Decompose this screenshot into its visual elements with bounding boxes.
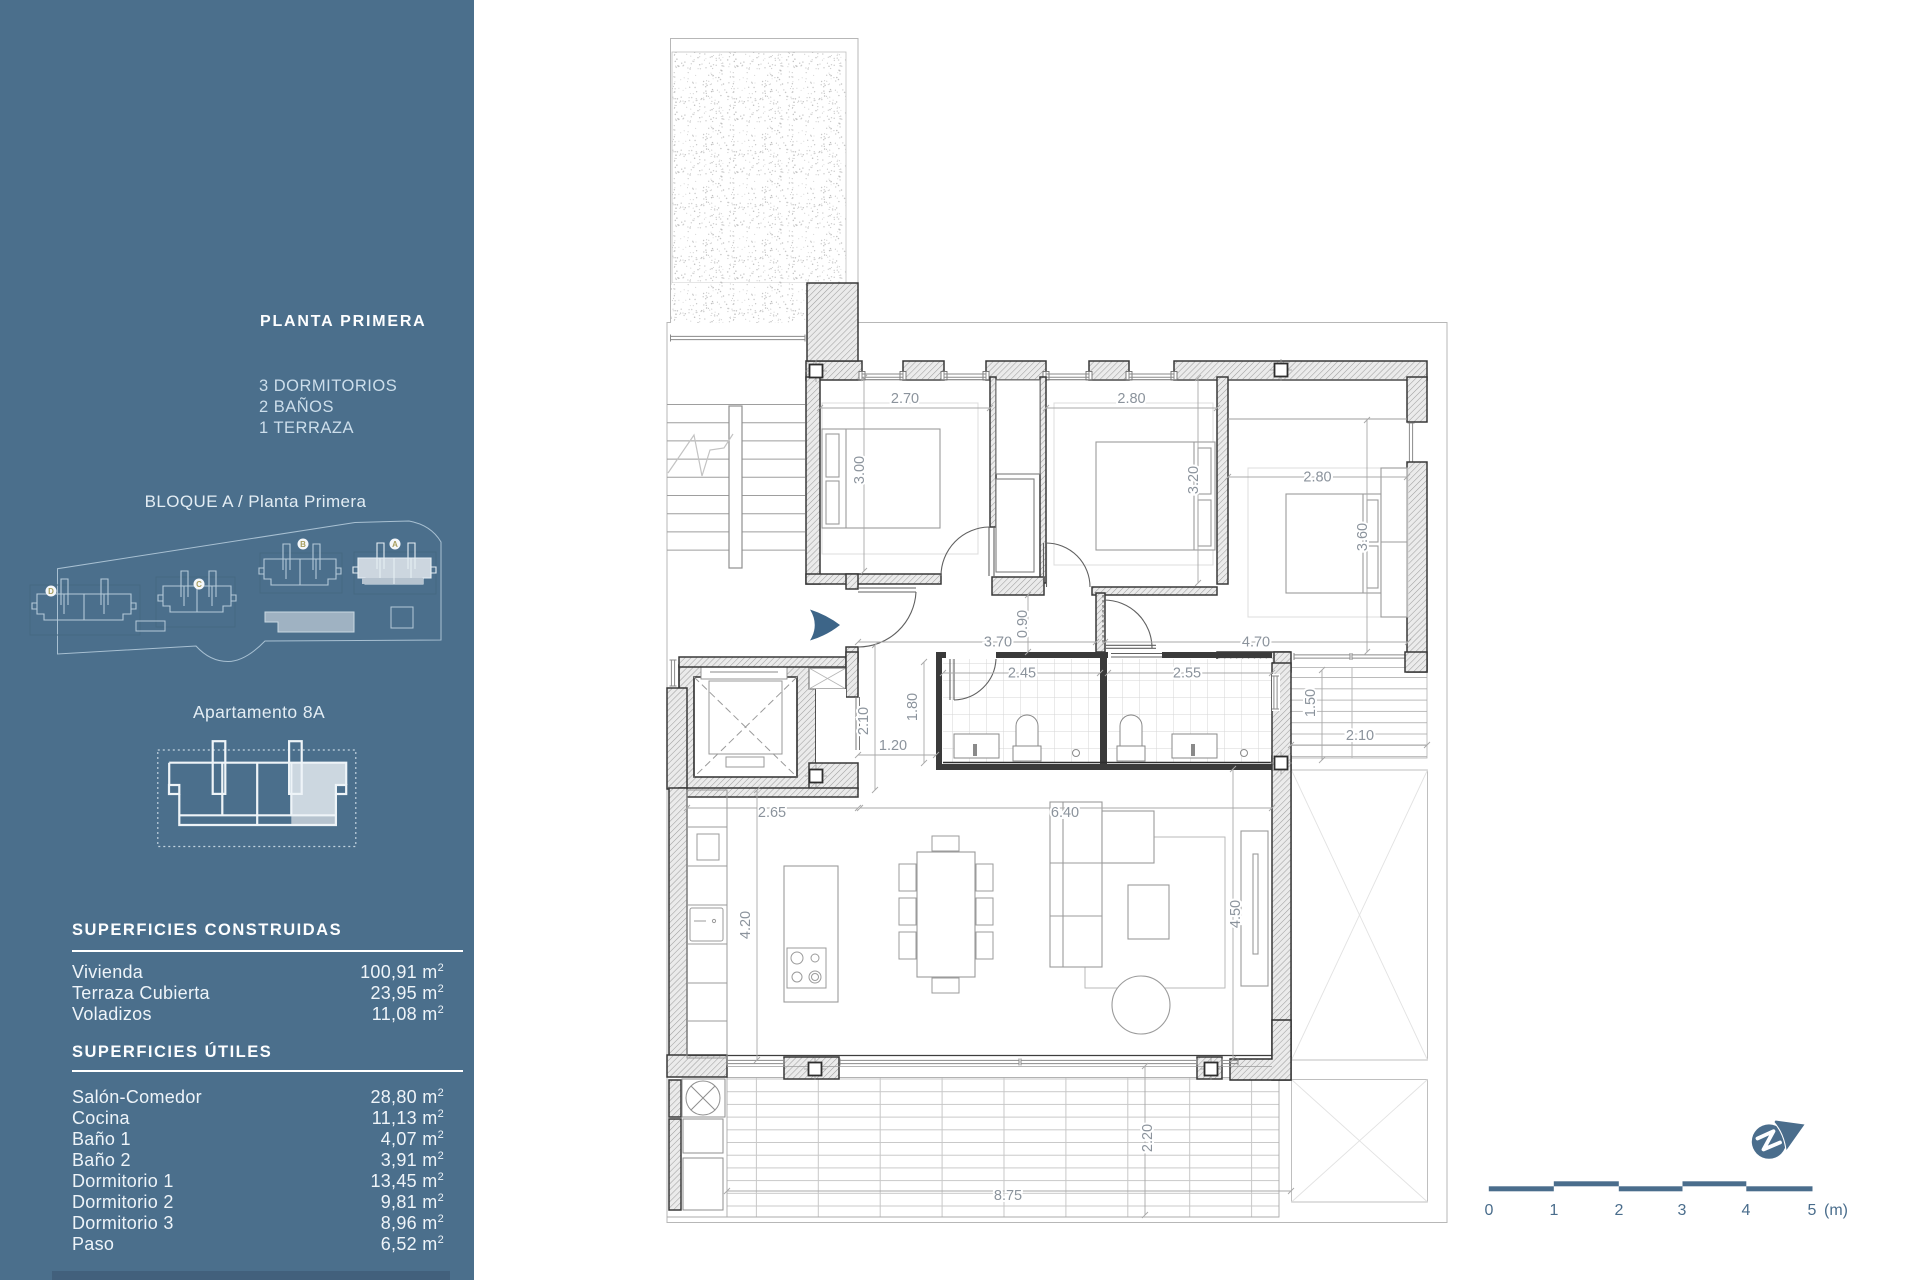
svg-text:2.80: 2.80 (1303, 470, 1331, 486)
svg-text:5: 5 (1808, 1202, 1817, 1219)
svg-text:2.45: 2.45 (1008, 666, 1036, 682)
svg-text:(m): (m) (1824, 1202, 1848, 1219)
svg-text:6.40: 6.40 (1051, 805, 1079, 821)
svg-text:2.10: 2.10 (856, 707, 872, 735)
svg-text:4: 4 (1742, 1202, 1751, 1219)
svg-text:3.20: 3.20 (1186, 466, 1202, 494)
svg-text:4.20: 4.20 (738, 911, 754, 939)
svg-text:1: 1 (1550, 1202, 1559, 1219)
svg-text:2.55: 2.55 (1173, 666, 1201, 682)
svg-text:1.20: 1.20 (879, 738, 907, 754)
svg-text:0: 0 (1485, 1202, 1494, 1219)
svg-text:2.10: 2.10 (1346, 728, 1374, 744)
svg-text:2.70: 2.70 (891, 391, 919, 407)
svg-text:3.70: 3.70 (984, 635, 1012, 651)
svg-text:2.80: 2.80 (1117, 391, 1145, 407)
svg-text:2.65: 2.65 (758, 805, 786, 821)
svg-text:3.00: 3.00 (852, 456, 868, 484)
svg-text:0.90: 0.90 (1015, 610, 1031, 638)
svg-text:4.70: 4.70 (1242, 635, 1270, 651)
svg-text:1.80: 1.80 (905, 693, 921, 721)
svg-text:4.50: 4.50 (1228, 900, 1244, 928)
svg-text:1.50: 1.50 (1303, 689, 1319, 717)
svg-text:8.75: 8.75 (994, 1188, 1022, 1204)
svg-text:3.60: 3.60 (1355, 523, 1371, 551)
svg-text:2.20: 2.20 (1140, 1124, 1156, 1152)
svg-text:2: 2 (1615, 1202, 1624, 1219)
svg-text:3: 3 (1678, 1202, 1687, 1219)
